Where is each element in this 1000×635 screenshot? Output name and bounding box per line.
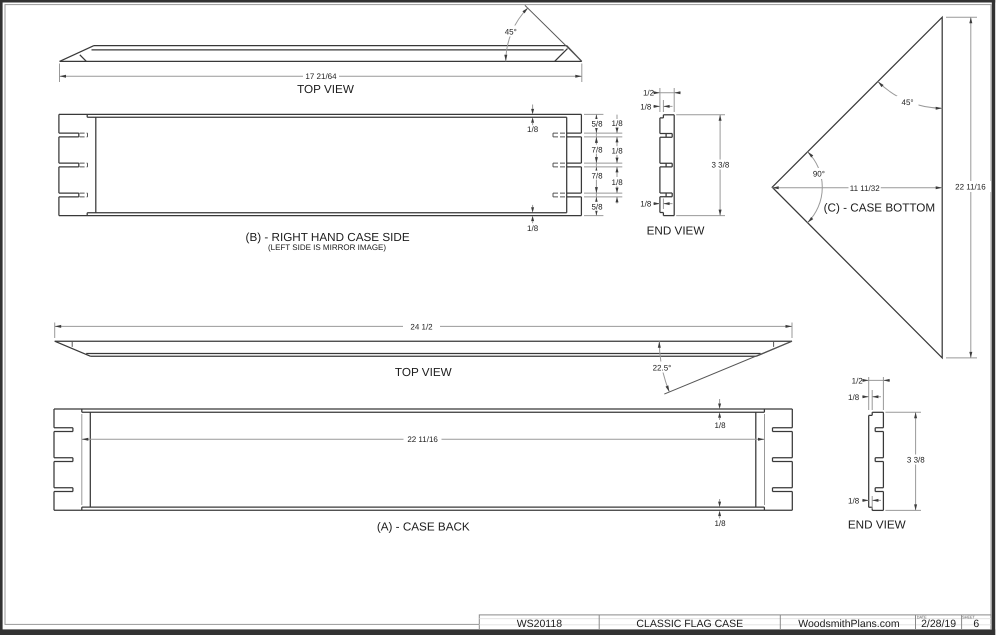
svg-text:1/8: 1/8 bbox=[848, 393, 860, 402]
svg-text:1/8: 1/8 bbox=[714, 421, 726, 430]
svg-text:1/8: 1/8 bbox=[612, 178, 624, 187]
svg-text:2/28/19: 2/28/19 bbox=[921, 618, 956, 630]
svg-text:(A) - CASE BACK: (A) - CASE BACK bbox=[377, 520, 470, 533]
svg-text:END VIEW: END VIEW bbox=[647, 225, 705, 238]
svg-text:1/8: 1/8 bbox=[714, 519, 726, 528]
svg-text:22.5°: 22.5° bbox=[653, 364, 672, 373]
svg-text:WS20118: WS20118 bbox=[517, 618, 562, 630]
svg-text:1/8: 1/8 bbox=[527, 224, 539, 233]
svg-text:END VIEW: END VIEW bbox=[848, 518, 906, 531]
svg-text:22 11/16: 22 11/16 bbox=[407, 435, 438, 444]
svg-text:24 1/2: 24 1/2 bbox=[410, 322, 433, 331]
svg-text:6: 6 bbox=[973, 618, 979, 630]
svg-text:CLASSIC FLAG CASE: CLASSIC FLAG CASE bbox=[636, 618, 743, 630]
svg-text:WoodsmithPlans.com: WoodsmithPlans.com bbox=[798, 618, 900, 630]
svg-text:1/2: 1/2 bbox=[852, 376, 864, 385]
svg-text:(LEFT SIDE IS MIRROR IMAGE): (LEFT SIDE IS MIRROR IMAGE) bbox=[268, 243, 386, 252]
svg-text:TOP VIEW: TOP VIEW bbox=[297, 83, 354, 96]
svg-text:90°: 90° bbox=[813, 170, 825, 179]
svg-text:(B) - RIGHT HAND CASE SIDE: (B) - RIGHT HAND CASE SIDE bbox=[246, 231, 410, 244]
svg-text:7/8: 7/8 bbox=[591, 145, 603, 154]
svg-text:1/8: 1/8 bbox=[640, 102, 652, 111]
svg-text:3 3/8: 3 3/8 bbox=[712, 160, 730, 169]
svg-text:22 11/16: 22 11/16 bbox=[955, 183, 986, 192]
svg-text:45°: 45° bbox=[902, 98, 914, 107]
svg-text:1/8: 1/8 bbox=[640, 200, 652, 209]
svg-text:7/8: 7/8 bbox=[591, 171, 603, 180]
svg-text:1/8: 1/8 bbox=[612, 147, 624, 156]
svg-text:1/8: 1/8 bbox=[612, 119, 624, 128]
svg-text:TOP VIEW: TOP VIEW bbox=[395, 366, 452, 379]
svg-text:11 11/32: 11 11/32 bbox=[850, 184, 881, 193]
svg-text:45°: 45° bbox=[505, 28, 517, 37]
svg-text:5/8: 5/8 bbox=[591, 120, 603, 129]
svg-text:5/8: 5/8 bbox=[591, 203, 603, 212]
svg-text:1/2: 1/2 bbox=[643, 89, 655, 98]
svg-text:1/8: 1/8 bbox=[527, 125, 539, 134]
svg-text:3 3/8: 3 3/8 bbox=[907, 455, 925, 464]
svg-text:1/8: 1/8 bbox=[848, 496, 860, 505]
svg-text:(C) - CASE BOTTOM: (C) - CASE BOTTOM bbox=[824, 202, 935, 215]
svg-text:17 21/64: 17 21/64 bbox=[305, 72, 337, 81]
